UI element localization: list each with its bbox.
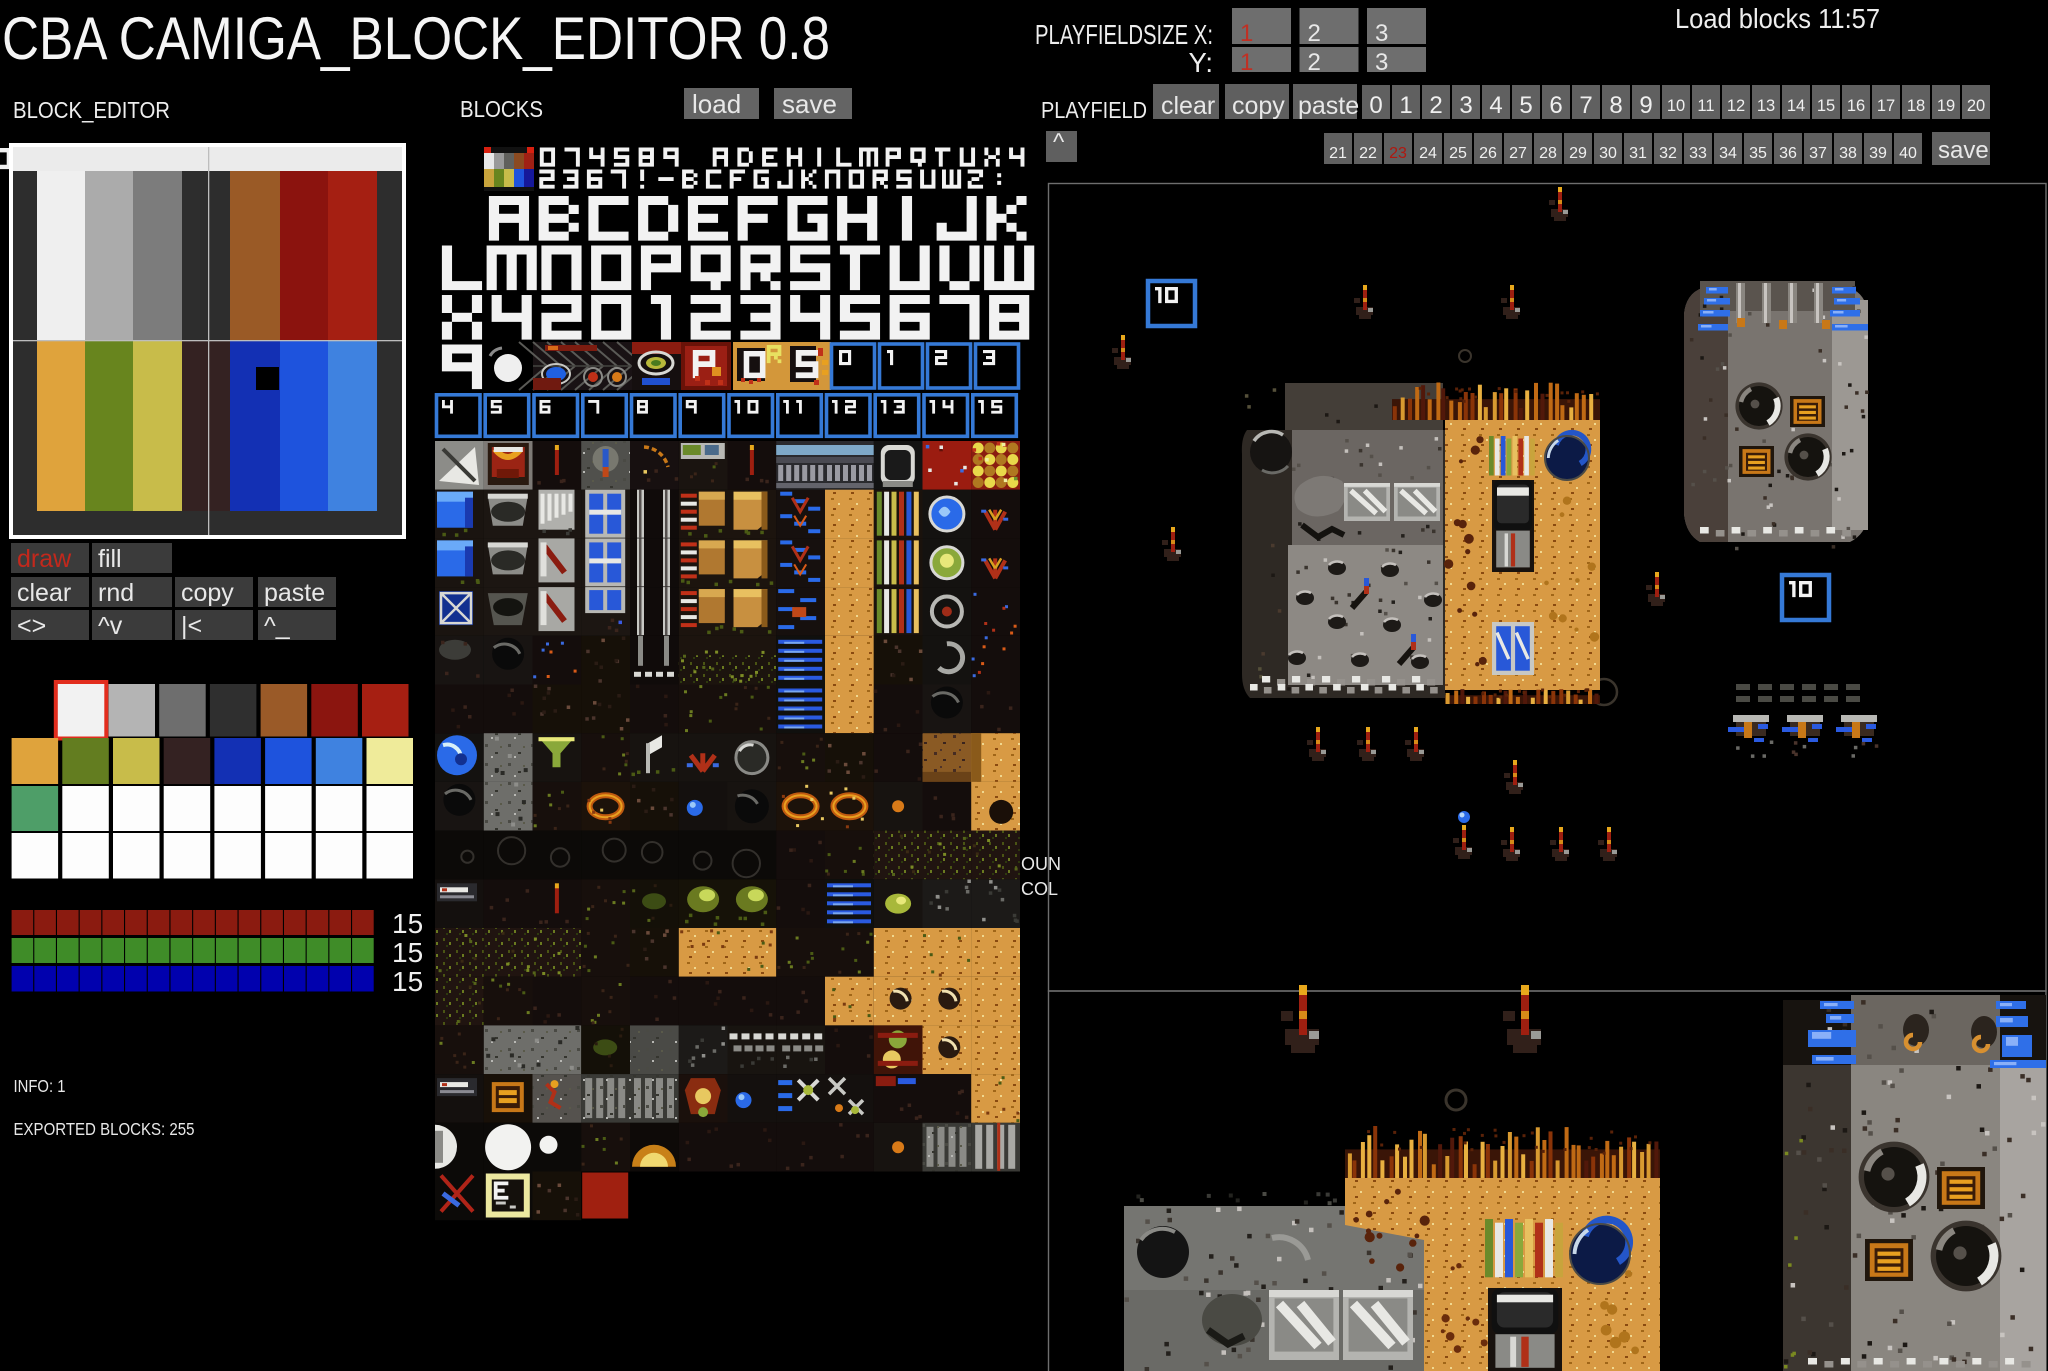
svg-text:19: 19 [1937,97,1955,115]
svg-text:3: 3 [1459,92,1472,119]
svg-text:39: 39 [1869,145,1887,162]
svg-text:30: 30 [1599,145,1617,162]
svg-text:|<: |< [181,612,202,640]
svg-text:27: 27 [1509,145,1527,162]
svg-text:15: 15 [392,937,423,968]
svg-text:5: 5 [1519,92,1532,119]
svg-text:^_: ^_ [264,612,291,640]
svg-text:31: 31 [1629,145,1647,162]
svg-text:6: 6 [1549,92,1562,119]
svg-text:1: 1 [1240,49,1253,76]
svg-text:17: 17 [1877,97,1895,115]
svg-text:OUN: OUN [1021,854,1061,874]
svg-text:15: 15 [392,908,423,939]
svg-text:rnd: rnd [98,579,134,607]
svg-text:7: 7 [1579,92,1592,119]
svg-text:18: 18 [1907,97,1925,115]
svg-text:^v: ^v [98,612,123,640]
svg-text:INFO: 1: INFO: 1 [14,1076,66,1096]
svg-text:clear: clear [1161,92,1215,120]
svg-text:8: 8 [1609,92,1622,119]
svg-text:13: 13 [1757,97,1775,115]
svg-text:9: 9 [1639,92,1652,119]
svg-text:23: 23 [1389,145,1407,162]
svg-text:<>: <> [17,612,46,640]
svg-text:16: 16 [1847,97,1865,115]
svg-text:3: 3 [1375,49,1388,76]
svg-text:copy: copy [1232,92,1285,120]
svg-text:26: 26 [1479,145,1497,162]
svg-text:paste: paste [1298,92,1359,120]
svg-text:PLAYFIELDSIZE X:: PLAYFIELDSIZE X: [1035,19,1213,50]
svg-text:BLOCKS: BLOCKS [460,96,543,122]
svg-text:4: 4 [1489,92,1502,119]
svg-text:load: load [692,89,741,119]
svg-text:20: 20 [1967,97,1985,115]
svg-text:38: 38 [1839,145,1857,162]
svg-text:Y:: Y: [1189,47,1213,78]
svg-text:copy: copy [181,579,234,607]
svg-text:BLOCK_EDITOR: BLOCK_EDITOR [13,97,170,123]
svg-text:2: 2 [1429,92,1442,119]
svg-text:clear: clear [17,579,71,607]
svg-text:COL: COL [1021,879,1058,899]
svg-text:10: 10 [1667,97,1685,115]
svg-text:33: 33 [1689,145,1707,162]
svg-text:24: 24 [1419,145,1437,162]
svg-text:40: 40 [1899,145,1917,162]
svg-text:2: 2 [1308,49,1321,76]
svg-text:3: 3 [1375,20,1388,47]
svg-text:1: 1 [1240,20,1253,47]
svg-text:25: 25 [1449,145,1467,162]
svg-text:35: 35 [1749,145,1767,162]
svg-text:21: 21 [1329,145,1347,162]
svg-text:2: 2 [1308,20,1321,47]
svg-text:0: 0 [1369,92,1382,119]
svg-text:PLAYFIELD: PLAYFIELD [1041,97,1147,123]
svg-text:EXPORTED BLOCKS: 255: EXPORTED BLOCKS: 255 [14,1119,195,1139]
svg-text:save: save [1938,137,1989,164]
svg-text:22: 22 [1359,145,1377,162]
svg-text:15: 15 [1817,97,1835,115]
svg-text:29: 29 [1569,145,1587,162]
svg-text:34: 34 [1719,145,1737,162]
svg-text:CBA CAMIGA_BLOCK_EDITOR 0.8: CBA CAMIGA_BLOCK_EDITOR 0.8 [2,5,830,72]
svg-text:14: 14 [1787,97,1805,115]
svg-text:37: 37 [1809,145,1827,162]
svg-text:32: 32 [1659,145,1677,162]
svg-text:28: 28 [1539,145,1557,162]
svg-text:36: 36 [1779,145,1797,162]
svg-text:^: ^ [1053,129,1065,156]
svg-text:paste: paste [264,579,325,607]
svg-text:15: 15 [392,966,423,997]
svg-text:Load blocks 11:57: Load blocks 11:57 [1675,3,1880,34]
svg-text:12: 12 [1727,97,1745,115]
svg-text:1: 1 [1399,92,1412,119]
svg-text:draw: draw [17,545,72,573]
svg-text:save: save [782,89,837,119]
svg-text:fill: fill [98,545,122,573]
svg-text:11: 11 [1697,97,1714,115]
